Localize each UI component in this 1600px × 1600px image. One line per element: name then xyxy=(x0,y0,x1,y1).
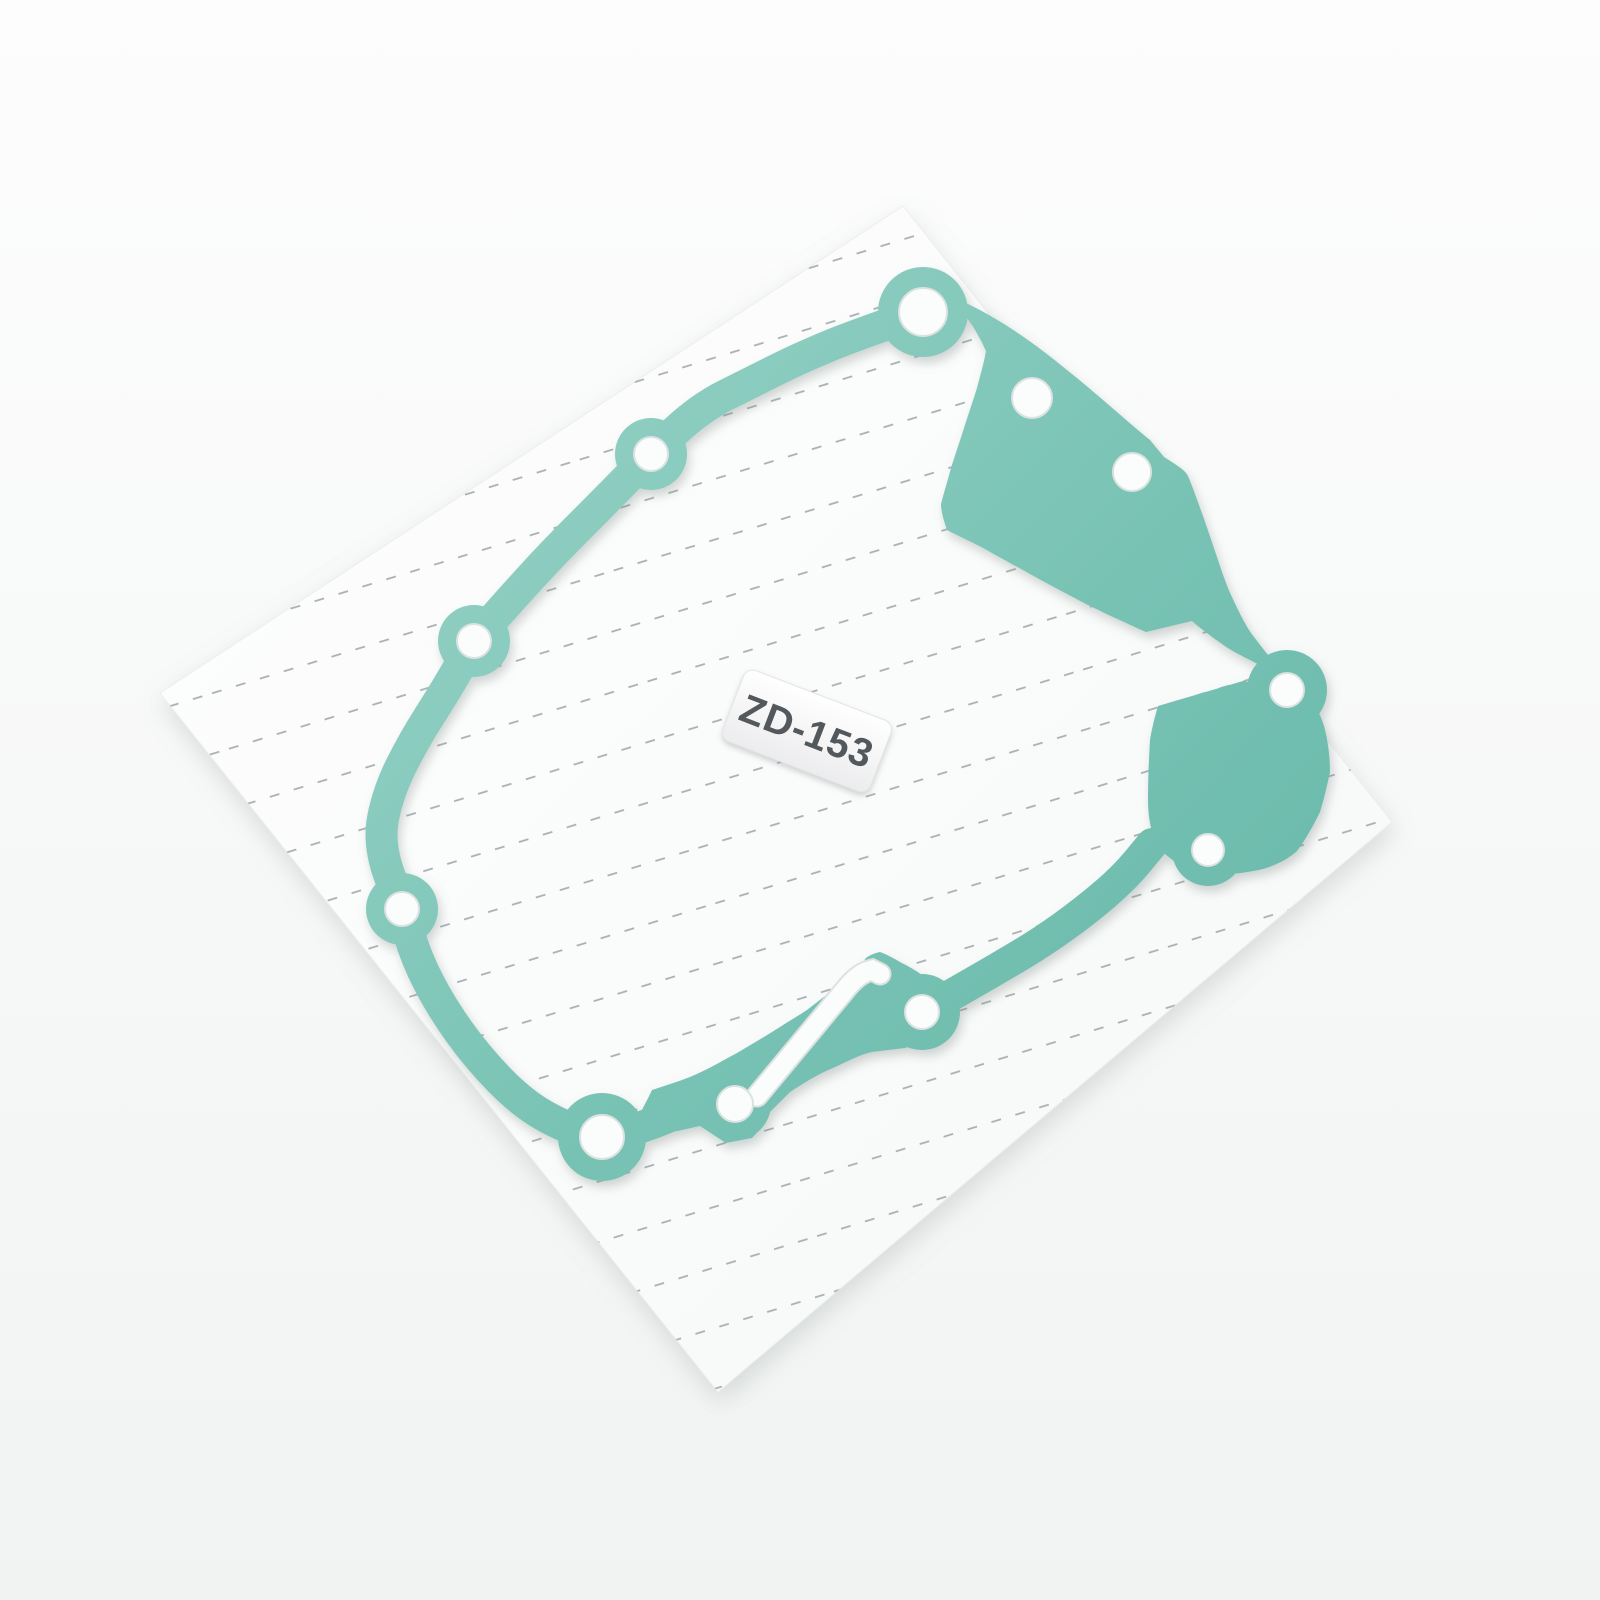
bolt-hole-bridge xyxy=(1270,673,1304,707)
bolt-hole-hook xyxy=(905,995,939,1029)
bolt-hole-top xyxy=(899,288,947,336)
bolt-hole-upper-region-1 xyxy=(1012,378,1052,418)
bolt-hole-slot-left xyxy=(717,1086,753,1122)
bolt-hole-lower-left xyxy=(385,892,419,926)
bolt-hole-left xyxy=(457,624,491,658)
bolt-hole-upper-region-2 xyxy=(1113,453,1151,491)
bolt-hole-lower-region xyxy=(1192,834,1224,866)
photo-canvas: ZD-153 xyxy=(0,0,1600,1600)
product-photo: ZD-153 xyxy=(0,0,1600,1600)
bolt-hole-bottom xyxy=(580,1115,624,1159)
bolt-hole-upper-left xyxy=(634,437,668,471)
